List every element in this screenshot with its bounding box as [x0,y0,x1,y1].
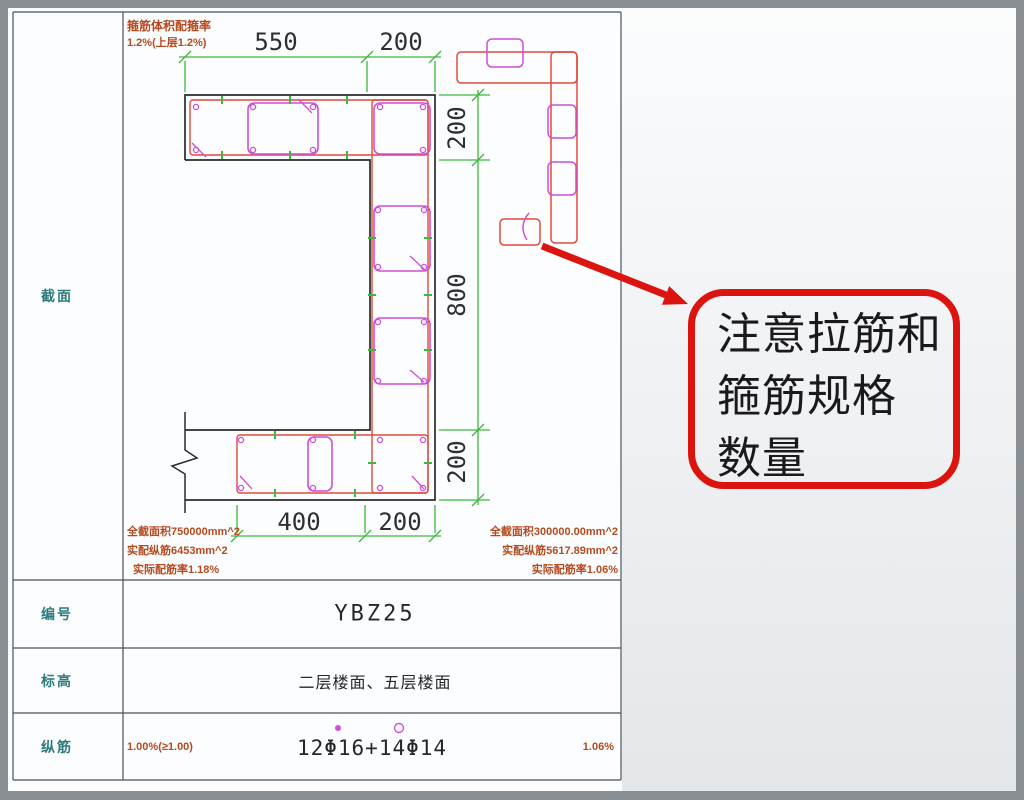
callout-arrow-icon [542,246,688,305]
open-bar-circle-icon [395,724,404,733]
elevation-value: 二层楼面、五层楼面 [298,669,451,693]
longitudinal-bars-value: 12Φ16+14Φ14 [297,736,447,760]
break-line [172,412,197,513]
tie-hook-icon [523,213,529,240]
dim-right-800: 800 [443,273,471,316]
note-bottom-left-2: 实配纵筋6453mm^2 [127,543,228,557]
dim-right-200-bottom: 200 [443,440,471,483]
note-top-left-2: 1.2%(上层1.2%) [127,35,207,49]
dim-top-550: 550 [254,28,297,56]
note-bottom-right-3: 实际配筋率1.06% [532,562,618,576]
stirrup-detail [457,39,577,245]
row-label-longitudinal-bars: 纵筋 [41,737,73,757]
stirrups [192,99,430,491]
callout-line-3: 数量 [717,428,953,490]
dim-right-200-top: 200 [443,106,471,149]
rebar-dots [193,104,426,490]
filled-bar-dot-icon [335,725,341,731]
bar-legend-symbols [335,724,404,733]
callout-line-2: 箍筋规格 [717,366,953,428]
rebar-ratio-right: 1.06% [583,741,614,753]
note-bottom-left-1: 全截面积750000mm^2 [126,524,240,538]
concrete-outline [172,95,435,513]
note-top-left-1: 箍筋体积配箍率 [126,18,211,33]
row-label-section: 截面 [41,286,73,306]
dim-bottom-400: 400 [277,508,320,536]
dim-top-200: 200 [379,28,422,56]
row-label-number: 编号 [41,604,73,624]
rebar-ratio-left: 1.00%(≥1.00) [127,741,193,753]
dim-bottom-200: 200 [378,508,421,536]
column-number-value: YBZ25 [334,602,415,627]
table-grid [13,12,621,780]
rebar-outline [190,100,428,493]
row-label-elevation: 标高 [41,671,73,691]
note-bottom-left-3: 实际配筋率1.18% [133,562,219,576]
callout-box: 注意拉筋和 箍筋规格 数量 [688,289,960,489]
note-bottom-right-2: 实配纵筋5617.89mm^2 [502,543,618,557]
callout-line-1: 注意拉筋和 [717,304,953,366]
note-bottom-right-1: 全截面积300000.00mm^2 [489,524,618,538]
